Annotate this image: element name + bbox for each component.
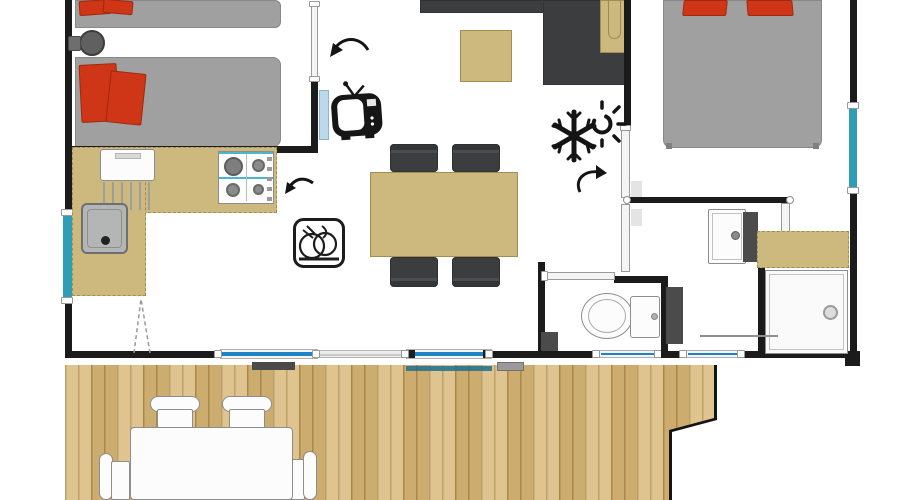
tv-icon (329, 79, 383, 141)
floor-plan (0, 0, 900, 500)
sun-icon (594, 102, 626, 146)
dishwasher-icon (292, 217, 346, 270)
icons-overlay (0, 0, 900, 500)
snowflake-icon (553, 112, 595, 160)
door-swing-dashed (134, 299, 150, 353)
